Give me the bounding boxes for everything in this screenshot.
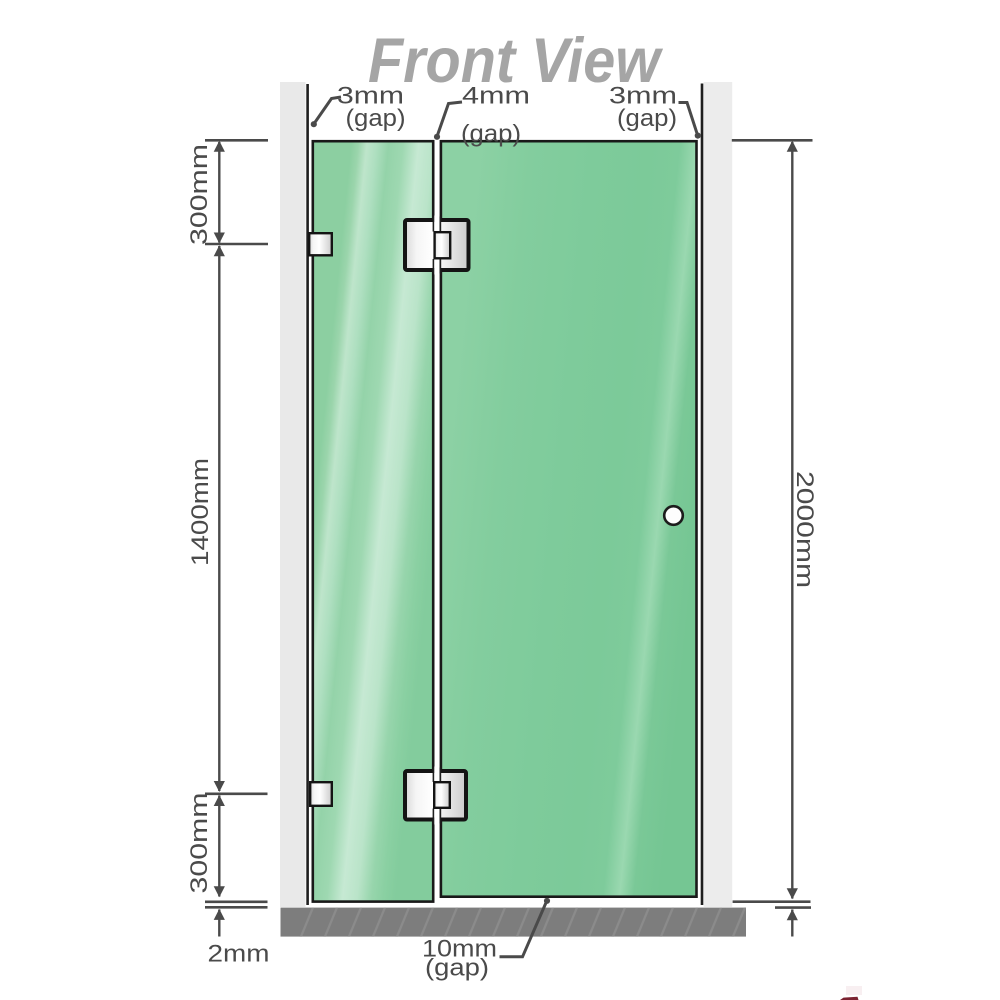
svg-text:1400mm: 1400mm bbox=[187, 458, 214, 566]
svg-text:300mm: 300mm bbox=[186, 144, 213, 245]
svg-text:(gap): (gap) bbox=[461, 121, 521, 148]
svg-text:4mm: 4mm bbox=[462, 83, 530, 110]
svg-text:(gap): (gap) bbox=[425, 955, 489, 982]
svg-text:(gap): (gap) bbox=[617, 105, 677, 132]
svg-text:(gap): (gap) bbox=[346, 105, 406, 132]
svg-text:2mm: 2mm bbox=[208, 941, 270, 968]
svg-text:2000mm: 2000mm bbox=[791, 471, 818, 588]
svg-text:300mm: 300mm bbox=[186, 793, 213, 894]
